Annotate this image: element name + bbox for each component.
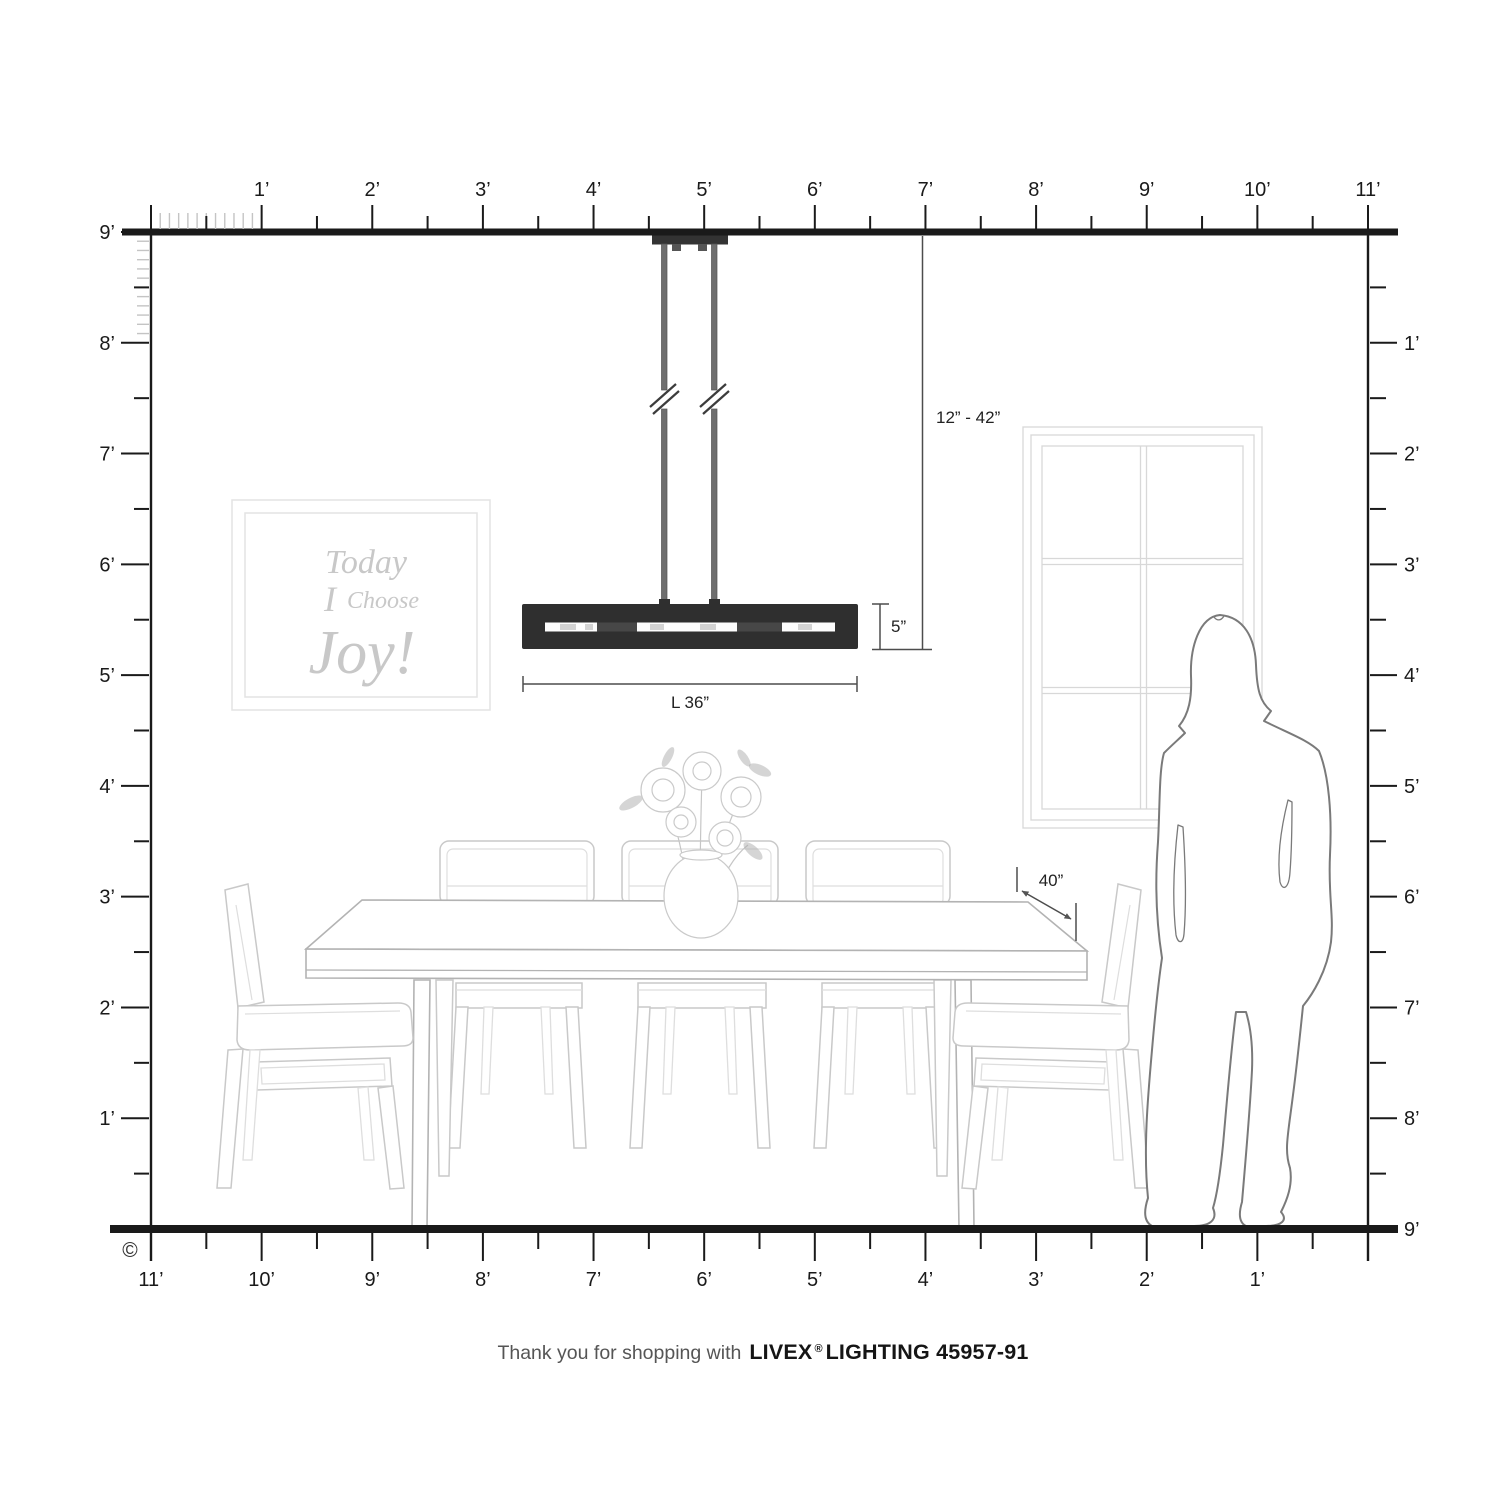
- table-back-leg: [934, 980, 951, 1176]
- flower-vase: [664, 854, 738, 938]
- table-apron: [306, 949, 1087, 980]
- ruler-label: 2’: [1139, 1269, 1155, 1291]
- ruler-label: 4’: [918, 1269, 934, 1291]
- back-chair: [440, 841, 594, 1148]
- ruler-label: 8’: [1028, 179, 1044, 201]
- ruler-label: 4’: [1404, 665, 1420, 687]
- registered-trademark-icon: ®: [814, 1343, 822, 1355]
- dimension-annotations: 12” - 42” 5” L 36” 40”: [523, 236, 1076, 941]
- ruler-label: 8’: [1404, 1108, 1420, 1130]
- ruler-label: 7’: [918, 179, 934, 201]
- footer-brand: LIVEX: [749, 1340, 812, 1365]
- ruler-label: 6’: [807, 179, 823, 201]
- table-front-leg: [412, 980, 430, 1228]
- ceiling-canopy: [652, 235, 728, 245]
- ruler-label: 2’: [99, 997, 115, 1019]
- scene: Today I Choose Joy!: [0, 0, 1500, 1500]
- downrod: [662, 409, 668, 605]
- ruler-label: 7’: [99, 444, 115, 466]
- ruler-label: 11’: [138, 1269, 163, 1291]
- ruler-label: 9’: [99, 222, 115, 244]
- ruler-label: 1’: [1404, 333, 1420, 355]
- ceiling-line: [122, 229, 1398, 236]
- ruler-label: 2’: [1404, 444, 1420, 466]
- ruler-label: 11’: [1355, 179, 1380, 201]
- copyright-symbol: ©: [122, 1239, 138, 1262]
- ruler-label: 9’: [1404, 1219, 1420, 1241]
- ruler-label: 5’: [99, 665, 115, 687]
- ruler-label: 6’: [99, 554, 115, 576]
- ruler-label: 7’: [1404, 997, 1420, 1019]
- ruler-label: 6’: [696, 1269, 712, 1291]
- downrod: [662, 244, 668, 390]
- ruler-label: 1’: [1250, 1269, 1266, 1291]
- art-line1: Today: [325, 544, 408, 581]
- downrod: [712, 409, 718, 605]
- back-chair: [806, 841, 950, 1148]
- footer-prefix: Thank you for shopping with: [497, 1342, 741, 1365]
- ruler-label: 7’: [586, 1269, 602, 1291]
- ruler-label: 4’: [99, 776, 115, 798]
- ruler-label: 3’: [1028, 1269, 1044, 1291]
- ruler-label: 10’: [1244, 179, 1271, 201]
- ruler-label: 5’: [1404, 776, 1420, 798]
- art-line3: Joy!: [309, 619, 416, 687]
- ruler-label: 9’: [1139, 179, 1155, 201]
- footer-caption: Thank you for shopping with LIVEX ® LIGH…: [0, 1340, 1500, 1365]
- ruler-label: 1’: [254, 179, 270, 201]
- ruler-label: 5’: [807, 1269, 823, 1291]
- floor-line: [110, 1225, 1398, 1233]
- dim-clearance-label: 40”: [1039, 871, 1064, 890]
- ruler-label: 8’: [99, 333, 115, 355]
- ruler-label: 10’: [248, 1269, 275, 1291]
- canopy-mount: [672, 244, 681, 251]
- ruler-label: 8’: [475, 1269, 491, 1291]
- woman-silhouette: [1145, 615, 1332, 1226]
- ruler-label: 3’: [475, 179, 491, 201]
- footer-model: LIGHTING 45957-91: [826, 1340, 1029, 1365]
- dim-length-label: L 36”: [671, 693, 709, 712]
- art-line2-i: I: [323, 579, 338, 619]
- dim-height-label: 5”: [891, 617, 906, 636]
- ruler-label: 5’: [696, 179, 712, 201]
- scale-diagram-page: Today I Choose Joy!: [0, 0, 1500, 1500]
- canopy-mount: [698, 244, 707, 251]
- wall-art: Today I Choose Joy!: [232, 500, 490, 710]
- downrod: [712, 244, 718, 390]
- ruler-label: 9’: [364, 1269, 380, 1291]
- ruler-label: 2’: [364, 179, 380, 201]
- ruler-label: 6’: [1404, 887, 1420, 909]
- dim-drop-label: 12” - 42”: [936, 408, 1001, 427]
- ruler-label: 3’: [99, 887, 115, 909]
- ruler-label: 1’: [99, 1108, 115, 1130]
- ruler-label: 4’: [586, 179, 602, 201]
- ruler-label: 3’: [1404, 554, 1420, 576]
- art-line2-choose: Choose: [347, 588, 419, 614]
- pendant-fixture: [522, 235, 858, 650]
